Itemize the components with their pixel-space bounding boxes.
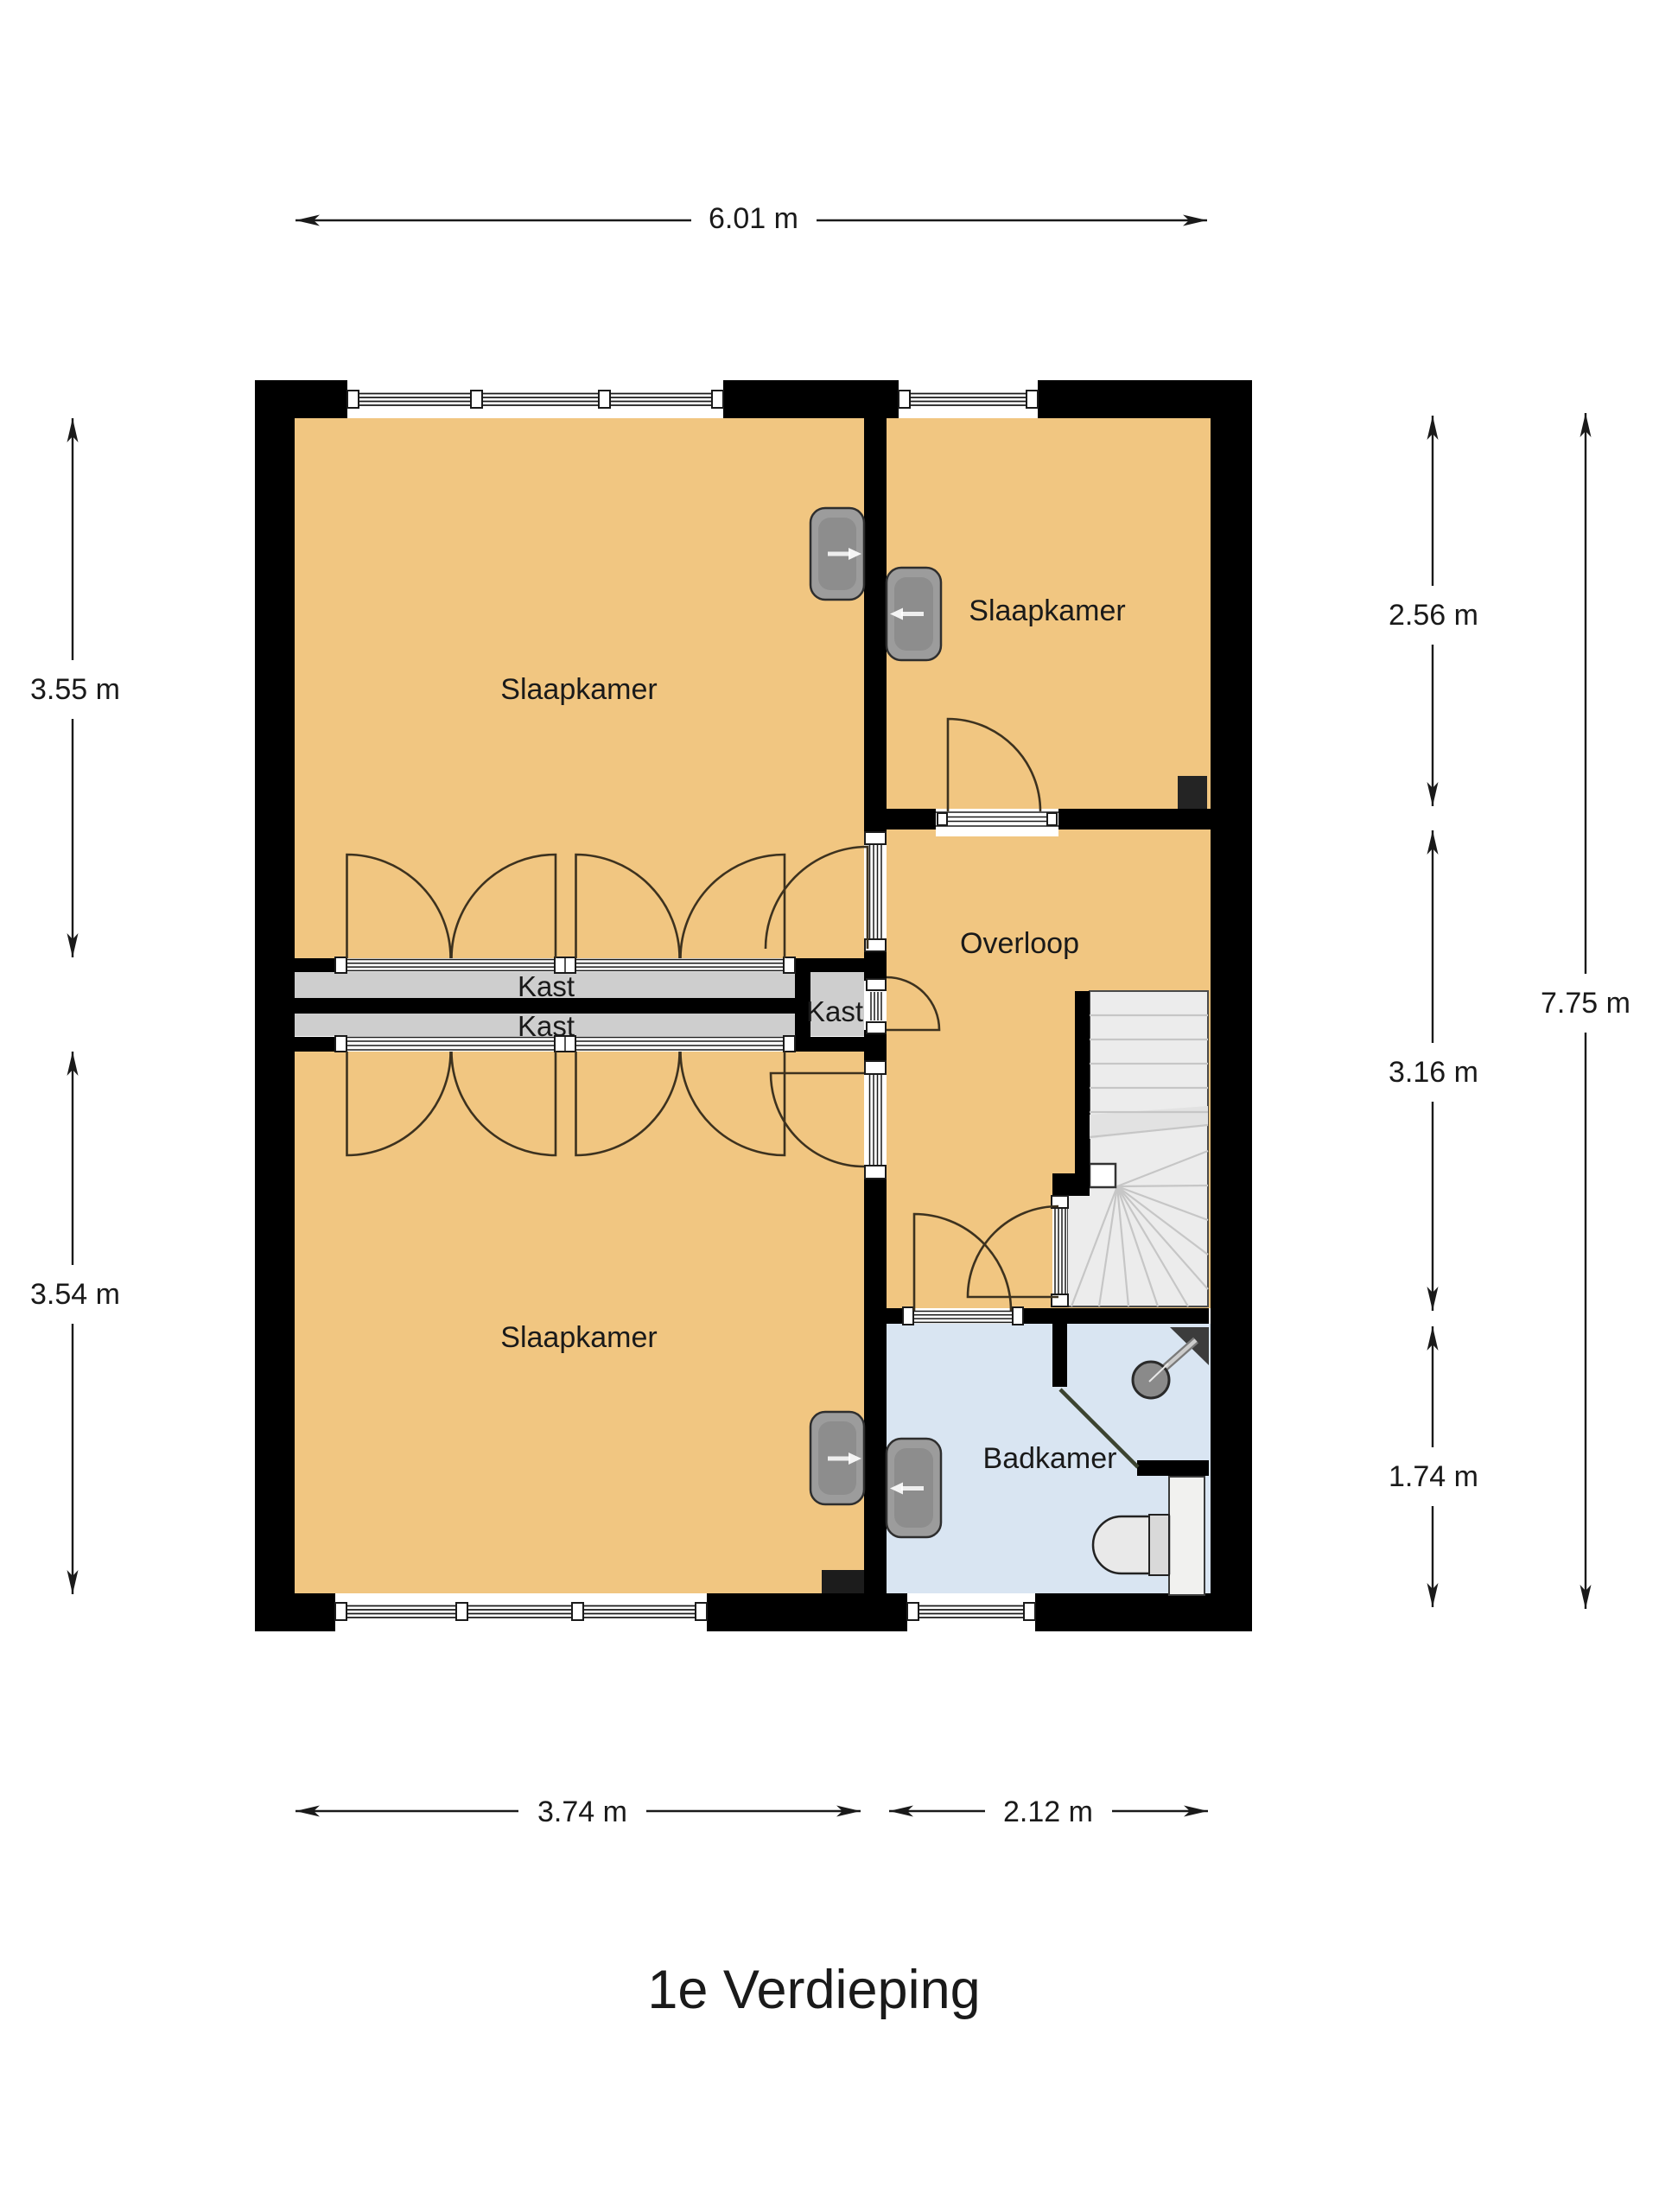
- svg-text:Slaapkamer: Slaapkamer: [969, 594, 1125, 627]
- svg-text:Overloop: Overloop: [960, 927, 1079, 960]
- svg-text:3.16 m: 3.16 m: [1389, 1056, 1478, 1089]
- svg-text:2.56 m: 2.56 m: [1389, 599, 1478, 632]
- svg-text:1e Verdieping: 1e Verdieping: [647, 1960, 980, 2020]
- svg-text:3.55 m: 3.55 m: [30, 673, 120, 706]
- svg-text:Badkamer: Badkamer: [983, 1442, 1117, 1475]
- svg-text:6.01 m: 6.01 m: [709, 202, 798, 235]
- svg-text:Slaapkamer: Slaapkamer: [500, 673, 657, 706]
- svg-text:3.54 m: 3.54 m: [30, 1278, 120, 1311]
- svg-text:1.74 m: 1.74 m: [1389, 1460, 1478, 1493]
- svg-text:Kast: Kast: [518, 1010, 575, 1042]
- svg-text:Kast: Kast: [518, 970, 575, 1002]
- svg-text:Kast: Kast: [806, 995, 863, 1027]
- svg-text:2.12 m: 2.12 m: [1003, 1796, 1093, 1828]
- svg-text:3.74 m: 3.74 m: [537, 1796, 627, 1828]
- svg-text:Slaapkamer: Slaapkamer: [500, 1321, 657, 1354]
- svg-text:7.75 m: 7.75 m: [1541, 987, 1630, 1020]
